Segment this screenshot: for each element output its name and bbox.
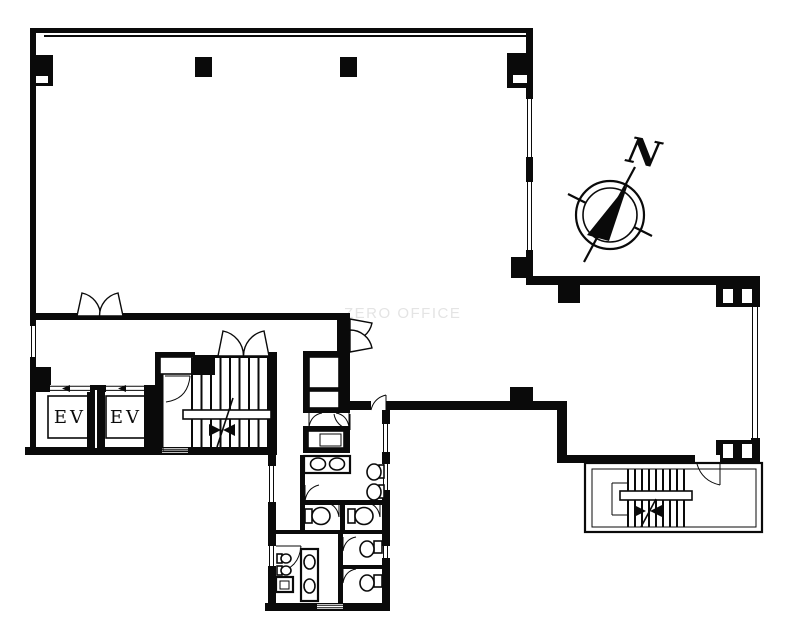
structural-columns: [32, 53, 760, 462]
elevator-2: EV: [106, 385, 146, 438]
urinals: [277, 554, 291, 575]
stair-landing: [620, 491, 692, 500]
cabinet: [160, 357, 192, 374]
lower-toilet-stalls: [343, 537, 382, 591]
compass-rose: N: [568, 129, 666, 262]
stairwell-door: [697, 463, 720, 485]
north-label: N: [622, 129, 666, 178]
stair-lobby-double-door: [218, 331, 269, 356]
vestibule-door: [165, 376, 190, 402]
east-stairwell: [585, 463, 762, 532]
watermark: ZERO OFFICE: [344, 305, 461, 322]
elevator-1-label: EV: [54, 407, 86, 428]
kitchenette: [308, 431, 344, 448]
urinal-counter: [301, 549, 318, 601]
elevator-1: EV: [48, 385, 92, 438]
west-stairwell: [160, 357, 275, 451]
main-entrance-double-door: [77, 293, 123, 316]
lavatory-door: [305, 485, 319, 501]
vanity-sinks: [304, 456, 350, 473]
floor-plan: ZERO OFFICE: [0, 0, 787, 628]
pipe-shaft: [309, 357, 339, 408]
elevator-2-label: EV: [110, 407, 142, 428]
restroom-core: [276, 357, 384, 601]
slop-sink: [276, 577, 293, 592]
compass-needle: [587, 184, 628, 241]
east-lobby-double-door: [350, 319, 372, 352]
